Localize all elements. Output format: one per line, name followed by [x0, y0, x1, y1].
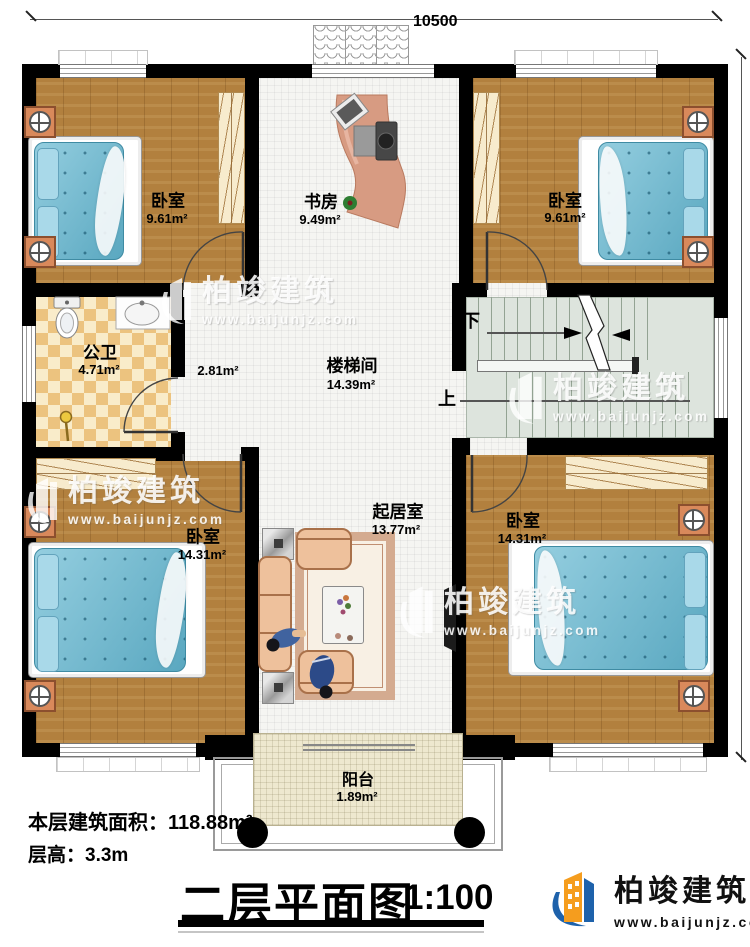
label-bathroom-area: 4.71m² — [78, 363, 119, 377]
door-arc-bathroom — [124, 378, 178, 432]
watermark-url: www.baijunjz.com — [444, 624, 601, 638]
brand-logo: 柏竣建筑 www.baijunjz.com — [542, 866, 750, 930]
label-bedroom-bl-area: 14.31m² — [178, 548, 226, 562]
watermark-logo-icon — [158, 276, 194, 328]
label-hall-area: 2.81m² — [197, 364, 238, 378]
label-bathroom-name: 公卫 — [83, 345, 117, 364]
brand-name: 柏竣建筑 — [614, 866, 750, 910]
label-study-area: 9.49m² — [299, 213, 340, 227]
door-arc-bedroom-br — [472, 455, 527, 512]
floor-drain-icon — [61, 412, 72, 442]
label-stairwell-area: 14.39m² — [327, 378, 375, 392]
title-underline — [178, 920, 484, 927]
floor-height-text: 层高：3.3m — [28, 840, 128, 867]
title-underline-thin — [178, 931, 484, 933]
watermark-brand: 柏竣建筑 — [68, 477, 225, 507]
stair-arrow-right — [612, 329, 630, 341]
watermark: 柏竣建筑 www.baijunjz.com — [505, 370, 710, 428]
label-bedroom-tl-name: 卧室 — [151, 193, 185, 212]
label-bedroom-bl-name: 卧室 — [186, 529, 220, 548]
stair-break-line — [578, 295, 610, 370]
drawing-scale: 1:100 — [404, 878, 494, 918]
label-stairwell-name: 楼梯间 — [327, 358, 378, 377]
label-study-name: 书房 — [304, 194, 338, 213]
label-bedroom-br-name: 卧室 — [506, 513, 540, 532]
watermark-logo-icon — [396, 584, 436, 642]
label-balcony-area: 1.89m² — [336, 790, 377, 804]
watermark-logo-icon — [24, 476, 60, 528]
floor-area-text: 本层建筑面积：118.88m² — [28, 806, 253, 835]
table-flowers-icon — [335, 595, 353, 641]
label-bedroom-tl-area: 9.61m² — [146, 212, 187, 226]
watermark-url: www.baijunjz.com — [68, 513, 225, 527]
watermark: 柏竣建筑 www.baijunjz.com — [396, 584, 601, 642]
watermark: 柏竣建筑 www.baijunjz.com — [158, 276, 359, 328]
watermark-url: www.baijunjz.com — [202, 313, 359, 327]
person-sitting — [267, 625, 307, 652]
label-stair-down: 下 — [462, 312, 480, 332]
toilet-icon — [54, 297, 80, 338]
stair-arrow-left — [564, 327, 582, 339]
person-sitting — [307, 653, 338, 699]
monitor-icon — [354, 122, 397, 160]
brand-logo-icon — [542, 866, 604, 930]
watermark-logo-icon — [505, 370, 545, 428]
watermark-url: www.baijunjz.com — [553, 410, 710, 424]
plan-vector-layer — [0, 0, 750, 947]
label-stair-up: 上 — [438, 390, 456, 410]
watermark-brand: 柏竣建筑 — [553, 374, 710, 404]
label-living-area: 13.77m² — [372, 523, 420, 537]
watermark: 柏竣建筑 www.baijunjz.com — [24, 476, 225, 528]
watermark-brand: 柏竣建筑 — [202, 277, 359, 307]
watermark-brand: 柏竣建筑 — [444, 588, 601, 618]
label-bedroom-br-area: 14.31m² — [498, 532, 546, 546]
plant-icon — [343, 196, 357, 210]
door-arc-bedroom-tr — [487, 232, 547, 290]
brand-url: www.baijunjz.com — [614, 914, 750, 930]
floor-plan-canvas: 10500 11370 — [0, 0, 750, 947]
label-balcony-name: 阳台 — [342, 772, 374, 790]
label-living-name: 起居室 — [373, 504, 424, 523]
label-bedroom-tr-area: 9.61m² — [544, 211, 585, 225]
label-bedroom-tr-name: 卧室 — [548, 193, 582, 212]
